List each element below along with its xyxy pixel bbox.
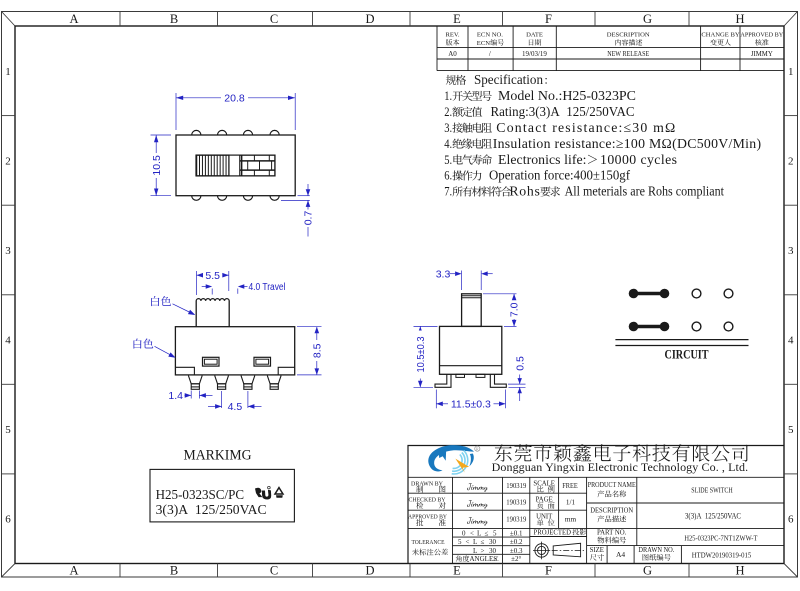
svg-text:≤: ≤: [485, 530, 489, 538]
svg-text:CIRCUIT: CIRCUIT: [665, 348, 710, 362]
svg-text:Specification: Specification: [474, 72, 543, 87]
svg-text:D: D: [365, 12, 374, 26]
svg-text:G: G: [643, 564, 652, 578]
svg-text:2: 2: [788, 155, 794, 167]
svg-text:190319: 190319: [506, 482, 526, 490]
svg-text:FREE: FREE: [562, 483, 578, 490]
svg-text:>: >: [481, 547, 485, 555]
svg-text:B: B: [170, 12, 178, 26]
svg-text:11.5±0.3: 11.5±0.3: [451, 398, 491, 410]
svg-text:H25-0323PC-7NT1ZWW-T: H25-0323PC-7NT1ZWW-T: [684, 534, 757, 543]
svg-text:All meterials are Rohs complia: All meterials are Rohs compliant: [565, 184, 725, 199]
svg-text:0: 0: [462, 530, 466, 538]
svg-text:H: H: [735, 12, 744, 26]
svg-text:Operation force:400±150gf: Operation force:400±150gf: [489, 168, 630, 183]
svg-text:4: 4: [5, 335, 11, 347]
svg-text:0.7: 0.7: [303, 211, 315, 226]
svg-text:1/1: 1/1: [566, 499, 576, 507]
svg-text:3.3: 3.3: [436, 268, 451, 280]
svg-text:APPROVED BY: APPROVED BY: [740, 32, 783, 39]
svg-text:5: 5: [788, 424, 794, 436]
svg-text:1.4: 1.4: [168, 390, 183, 402]
svg-text:5.: 5.: [444, 152, 452, 167]
svg-text:≤: ≤: [481, 538, 485, 546]
svg-text:3(3)A 125/250VAC: 3(3)A 125/250VAC: [156, 503, 267, 518]
svg-text:DESCRIPTION: DESCRIPTION: [590, 508, 633, 515]
svg-text:10.5: 10.5: [151, 155, 163, 176]
svg-text:4: 4: [788, 335, 794, 347]
svg-text:3(3)A 125/250VAC: 3(3)A 125/250VAC: [685, 512, 741, 521]
svg-text:L: L: [477, 530, 481, 538]
svg-text:E: E: [453, 564, 461, 578]
svg-text:1: 1: [5, 66, 11, 78]
svg-text:PRODUCT NAME: PRODUCT NAME: [588, 482, 636, 489]
svg-text:/: /: [489, 50, 491, 58]
svg-text:10000 cycles: 10000 cycles: [600, 152, 677, 167]
svg-text:2: 2: [5, 155, 11, 167]
svg-text:SIZE: SIZE: [590, 547, 604, 554]
svg-text:6: 6: [5, 514, 11, 526]
svg-text:Rating:3(3)A 125/250VAC: Rating:3(3)A 125/250VAC: [491, 104, 635, 120]
svg-text:6: 6: [788, 514, 794, 526]
svg-text:H: H: [735, 564, 744, 578]
svg-text:3.: 3.: [444, 120, 452, 135]
svg-text:SLIDE SWITCH: SLIDE SWITCH: [691, 486, 733, 494]
svg-text:Model No.:H25-0323PC: Model No.:H25-0323PC: [498, 88, 636, 103]
svg-text:TOLERANCE: TOLERANCE: [412, 539, 445, 546]
svg-text:4.0 Travel: 4.0 Travel: [249, 282, 286, 293]
svg-text:20.8: 20.8: [224, 93, 245, 105]
svg-text:A4: A4: [616, 550, 625, 559]
svg-text:HTDW20190319-015: HTDW20190319-015: [692, 551, 752, 559]
svg-text:B: B: [170, 564, 178, 578]
svg-text:5: 5: [493, 530, 497, 538]
svg-text:Contact resistance:≤30 mΩ: Contact resistance:≤30 mΩ: [496, 120, 675, 135]
svg-text:30: 30: [489, 547, 497, 555]
svg-text:<: <: [470, 530, 474, 538]
svg-text:2.: 2.: [444, 104, 452, 119]
svg-text:7.0: 7.0: [509, 302, 521, 317]
svg-text:PART NO.: PART NO.: [597, 529, 627, 536]
svg-text:A0: A0: [448, 50, 457, 58]
svg-text:C: C: [270, 12, 278, 26]
svg-text:DATE: DATE: [526, 32, 543, 39]
svg-text:PROJECTED: PROJECTED: [534, 530, 572, 537]
svg-text:DRAWN NO.: DRAWN NO.: [638, 547, 674, 554]
svg-text:5: 5: [5, 424, 11, 436]
svg-text:0.5: 0.5: [514, 356, 526, 371]
svg-text:CHANGE BY: CHANGE BY: [701, 32, 740, 39]
svg-text:MARKIMG: MARKIMG: [184, 448, 252, 464]
svg-text:7.: 7.: [444, 184, 452, 199]
svg-text:L: L: [473, 538, 477, 546]
svg-text:NEW RELEASE: NEW RELEASE: [607, 51, 649, 58]
svg-text:4.5: 4.5: [228, 401, 243, 413]
svg-text:DESCRIPTION: DESCRIPTION: [607, 32, 650, 39]
svg-text:Rohs: Rohs: [509, 184, 540, 199]
svg-text:F: F: [545, 12, 552, 26]
svg-text:±2°: ±2°: [511, 555, 521, 563]
svg-text:H25-0323SC/PC: H25-0323SC/PC: [156, 488, 245, 503]
svg-text:JIMMY: JIMMY: [751, 51, 773, 58]
svg-text:G: G: [643, 12, 652, 26]
svg-text:ECN NO.: ECN NO.: [477, 32, 503, 39]
svg-text:±0.2: ±0.2: [510, 538, 523, 546]
svg-text:L: L: [473, 547, 477, 555]
svg-text:5: 5: [458, 538, 462, 546]
svg-text:Electronics life:: Electronics life:: [498, 152, 587, 167]
svg-text:190319: 190319: [506, 516, 526, 524]
svg-text:19/03/19: 19/03/19: [522, 50, 547, 58]
svg-text:3: 3: [5, 245, 11, 257]
svg-text:D: D: [365, 564, 374, 578]
svg-text:10.5±0.3: 10.5±0.3: [416, 336, 427, 372]
svg-text:A: A: [69, 564, 78, 578]
svg-text:1: 1: [788, 66, 794, 78]
svg-text:APPROVED BY: APPROVED BY: [408, 514, 447, 521]
svg-text:4.: 4.: [444, 136, 452, 151]
svg-text:PAGE: PAGE: [536, 497, 553, 504]
svg-text:E: E: [453, 12, 461, 26]
svg-text:ECN: ECN: [477, 40, 490, 47]
svg-text:R: R: [476, 447, 479, 452]
svg-text:6.: 6.: [444, 168, 452, 183]
svg-text:DRAWN BY: DRAWN BY: [411, 480, 443, 487]
svg-text:C: C: [270, 564, 278, 578]
svg-text:190319: 190319: [506, 499, 526, 507]
svg-text:±0.1: ±0.1: [510, 530, 523, 538]
svg-text:mm: mm: [565, 516, 577, 524]
svg-text:CHECKED BY: CHECKED BY: [409, 497, 446, 504]
svg-text:Dongguan Yingxin Electronic Te: Dongguan Yingxin Electronic Technology C…: [492, 460, 748, 474]
svg-text:30: 30: [489, 538, 497, 546]
svg-text:F: F: [545, 564, 552, 578]
svg-text:ANGLES: ANGLES: [470, 555, 498, 563]
svg-text:<: <: [466, 538, 470, 546]
svg-text:8.5: 8.5: [311, 343, 323, 358]
svg-text:A: A: [69, 12, 78, 26]
svg-text:5.5: 5.5: [205, 270, 220, 282]
svg-text:1.: 1.: [444, 88, 452, 103]
svg-text:±0.3: ±0.3: [510, 547, 523, 555]
svg-text:Insulation resistance:≥100 MΩ(: Insulation resistance:≥100 MΩ(DC500V/Min…: [493, 136, 761, 152]
svg-text:3: 3: [788, 245, 794, 257]
svg-text:REV.: REV.: [446, 32, 460, 39]
